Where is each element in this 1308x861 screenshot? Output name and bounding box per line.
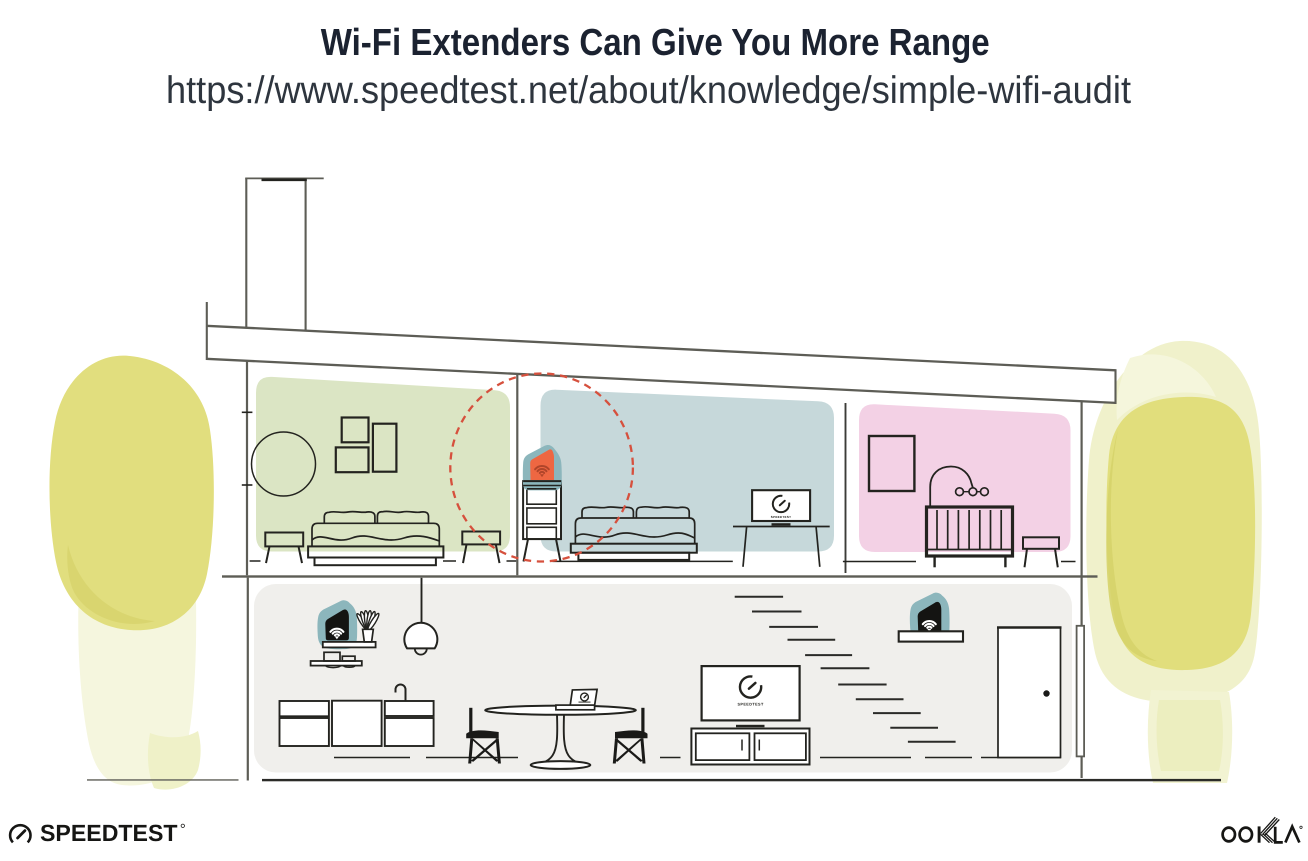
svg-text:Wi-Fi Extenders Can Give You M: Wi-Fi Extenders Can Give You More Range bbox=[321, 22, 990, 64]
svg-text:https://www.speedtest.net/abou: https://www.speedtest.net/about/knowledg… bbox=[166, 69, 1131, 112]
svg-text:SPEEDTEST: SPEEDTEST bbox=[771, 515, 792, 519]
svg-text:SPEEDTEST: SPEEDTEST bbox=[40, 820, 178, 846]
svg-text:SPEEDTEST: SPEEDTEST bbox=[738, 703, 764, 707]
